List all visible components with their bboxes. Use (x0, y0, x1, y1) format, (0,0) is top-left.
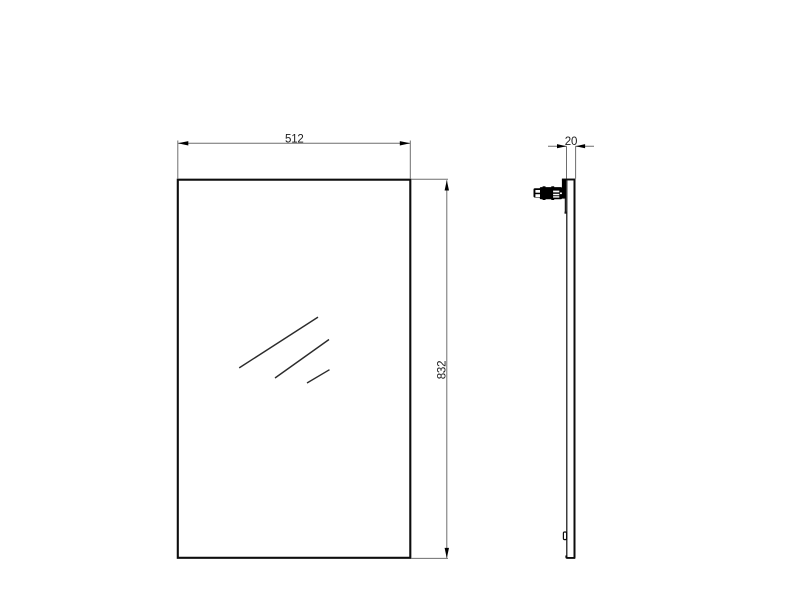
svg-text:20: 20 (565, 136, 577, 148)
svg-text:832: 832 (436, 361, 448, 380)
svg-text:512: 512 (285, 133, 304, 145)
